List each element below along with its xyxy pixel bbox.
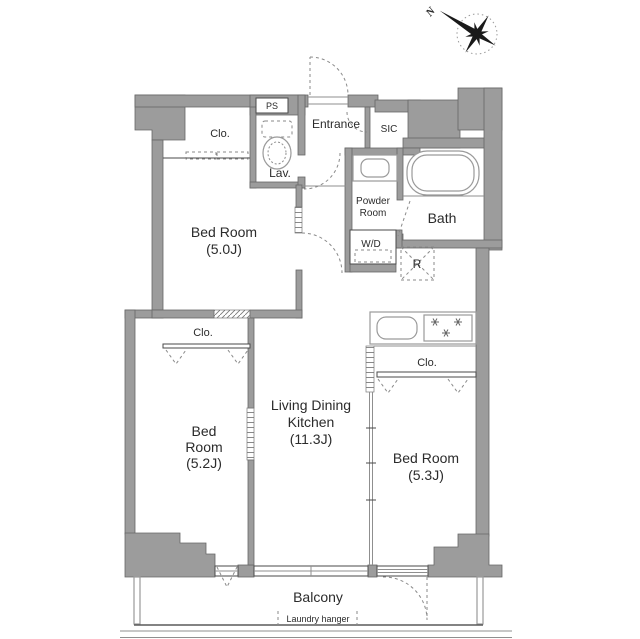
label-bedroom2-3: (5.2J) <box>186 455 222 471</box>
label-entrance: Entrance <box>312 117 360 131</box>
label-bedroom3-2: (5.3J) <box>408 467 444 483</box>
label-powder-1: Powder <box>356 196 391 207</box>
label-ldk-3: (11.3J) <box>290 431 333 447</box>
label-bedroom2-1: Bed <box>192 423 217 439</box>
label-wd: W/D <box>361 239 380 250</box>
label-balcony: Balcony <box>293 589 343 605</box>
closet-kitchen-doors <box>374 346 476 393</box>
label-closet-kitchen: Clo. <box>417 357 437 369</box>
toilet-icon <box>262 121 292 169</box>
closet-top-doors <box>163 152 250 159</box>
label-closet-mid: Clo. <box>193 327 213 339</box>
label-bedroom3-1: Bed Room <box>393 450 459 466</box>
label-powder-2: Room <box>360 208 387 219</box>
closet-mid-doors <box>163 344 250 364</box>
compass-rose: N <box>423 0 507 64</box>
floorplan-svg: N Clo. PS Entrance SIC Lav. Powder Room … <box>0 0 640 639</box>
label-sic: SIC <box>381 124 398 135</box>
label-bedroom2-2: Room <box>185 439 222 455</box>
entrance-door-sill <box>308 57 348 104</box>
label-ldk-2: Kitchen <box>288 414 335 430</box>
bathtub-icon <box>407 151 479 195</box>
label-bath: Bath <box>428 210 457 226</box>
label-laundry-hanger: Laundry hanger <box>286 614 349 624</box>
label-bedroom1-1: Bed Room <box>191 224 257 240</box>
label-bedroom1-2: (5.0J) <box>206 241 242 257</box>
compass-north-label: N <box>423 4 439 19</box>
powder-sink-icon <box>353 155 397 181</box>
sliding-partition <box>366 392 376 565</box>
label-ldk-1: Living Dining <box>271 397 351 413</box>
label-ps: PS <box>266 101 278 111</box>
balcony-railing <box>120 577 512 638</box>
label-lavatory: Lav. <box>269 166 291 180</box>
label-refrigerator: R <box>413 257 422 271</box>
kitchen-counter <box>370 312 476 344</box>
label-closet-top: Clo. <box>210 128 230 140</box>
